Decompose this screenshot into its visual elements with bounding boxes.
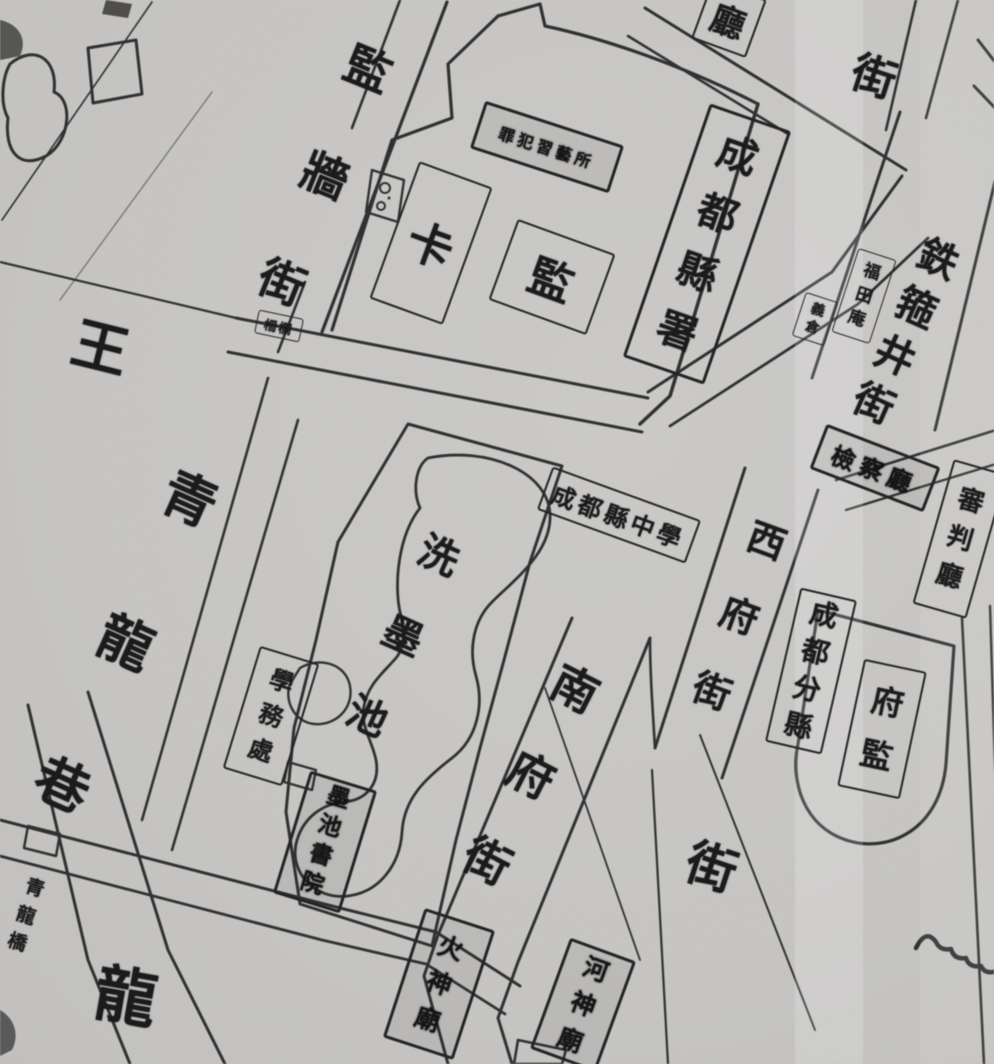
scanned-map-page: 監牆街 王 青龍巷 龍 青龍橋 鉄箍井街 街 西府街 南府街 街 洗墨池 卡 監… <box>0 0 994 1064</box>
building-label-text: 墨池書院 <box>297 781 354 902</box>
building-label-text: 義倉 <box>803 300 828 339</box>
building-label-text: 火神廟 <box>410 927 469 1042</box>
building-label-text: 卡 <box>398 204 464 282</box>
map-canvas: 監牆街 王 青龍巷 龍 青龍橋 鉄箍井街 街 西府街 南府街 街 洗墨池 卡 監… <box>0 0 994 1064</box>
building-label-text: 府監 <box>855 672 909 785</box>
building-label-text: 河神廟 <box>552 948 614 1062</box>
building-label-text: 學務處 <box>244 661 299 771</box>
building-label-text: 監 <box>520 239 583 314</box>
building-label-text: 廳 <box>705 0 754 48</box>
gate-label-text: 柵欄 <box>262 314 295 339</box>
